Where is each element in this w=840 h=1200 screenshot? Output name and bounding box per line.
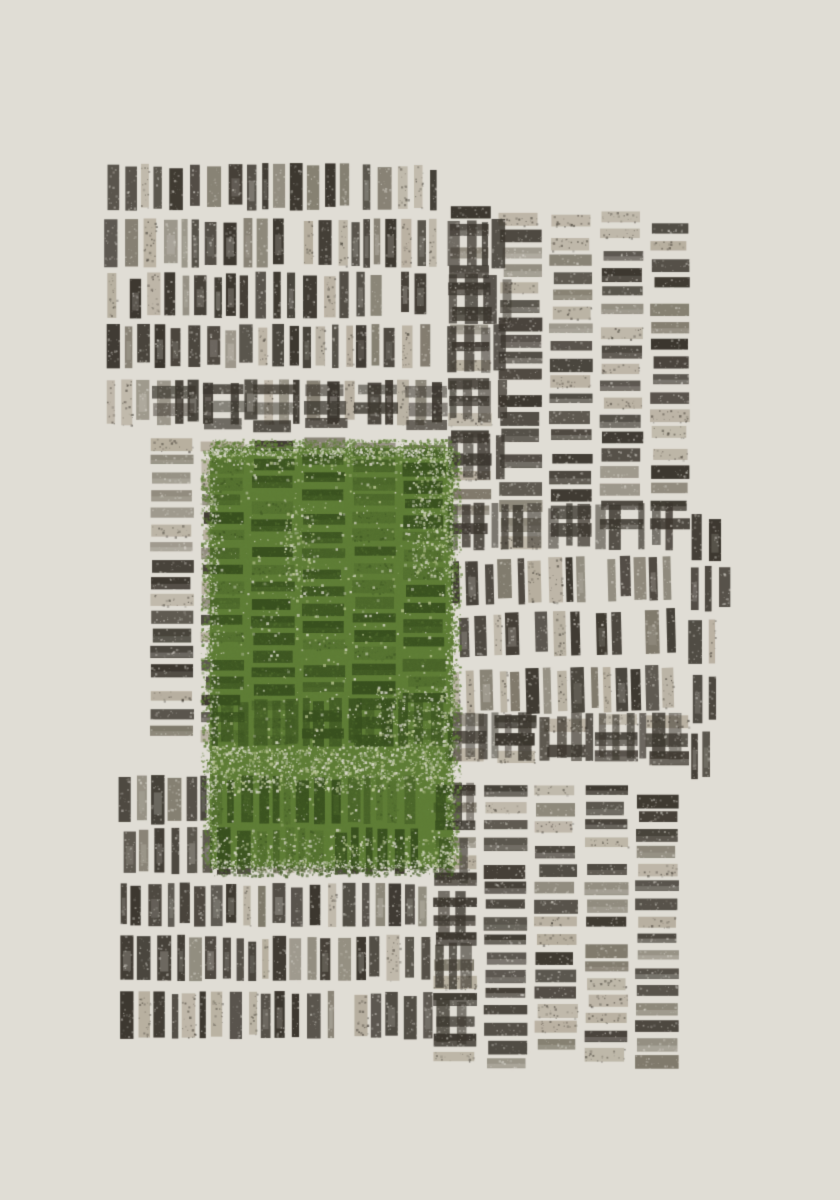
- artwork: [0, 0, 840, 1200]
- artwork-canvas: [0, 0, 840, 1200]
